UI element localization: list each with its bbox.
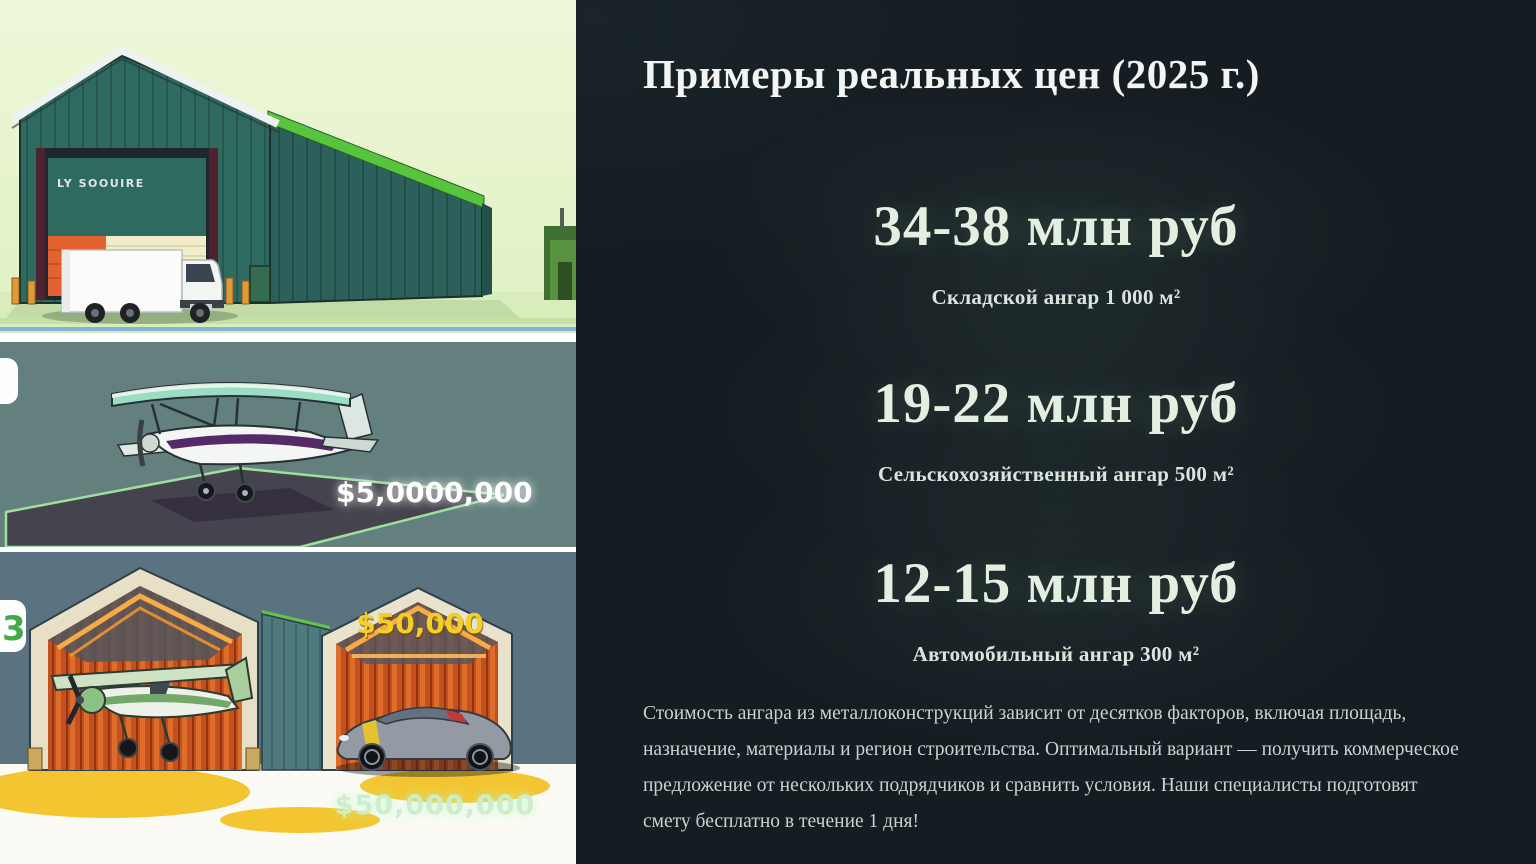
hangar-price-tag: $50,000,000	[335, 790, 536, 821]
price-label: Автомобильный ангар 300 м²	[576, 642, 1536, 667]
list-badge-3: 3	[0, 600, 26, 652]
truck-box	[62, 250, 182, 312]
middle-shed	[262, 610, 330, 770]
price-block-warehouse: 34-38 млн руб Складской ангар 1 000 м²	[576, 196, 1536, 310]
hangar-sign-text: LY SOOUIRE	[57, 177, 145, 190]
airplane-illustration: $5,0000,000	[0, 342, 576, 547]
garage-illustration: $50,000 $50,000,000 3	[0, 552, 576, 864]
list-badge-partial	[0, 358, 18, 404]
price-label: Сельскохозяйственный ангар 500 м²	[576, 462, 1536, 487]
price-value: 19-22 млн руб	[576, 373, 1536, 436]
plane-price-tag: $5,0000,000	[336, 476, 533, 509]
illustration-column: LY SOOUIRE	[0, 0, 576, 864]
car-price-tag: $50,000	[356, 607, 484, 640]
footer-note: Стоимость ангара из металлоконструкций з…	[643, 696, 1465, 840]
warehouse-illustration: LY SOOUIRE	[0, 0, 576, 333]
badge-number: 3	[2, 609, 26, 649]
price-value: 12-15 млн руб	[576, 553, 1536, 616]
side-door	[250, 266, 270, 302]
price-block-agricultural: 19-22 млн руб Сельскохозяйственный ангар…	[576, 373, 1536, 487]
curb-line	[0, 327, 576, 331]
price-block-automobile: 12-15 млн руб Автомобильный ангар 300 м²	[576, 553, 1536, 667]
slide: LY SOOUIRE	[0, 0, 1536, 864]
price-value: 34-38 млн руб	[576, 196, 1536, 259]
truck	[42, 250, 238, 324]
page-title: Примеры реальных цен (2025 г.)	[643, 50, 1260, 98]
truck-windshield	[186, 264, 215, 282]
price-panel: Примеры реальных цен (2025 г.) 34-38 млн…	[576, 0, 1536, 864]
price-label: Складской ангар 1 000 м²	[576, 285, 1536, 310]
panel-divider	[0, 333, 576, 342]
